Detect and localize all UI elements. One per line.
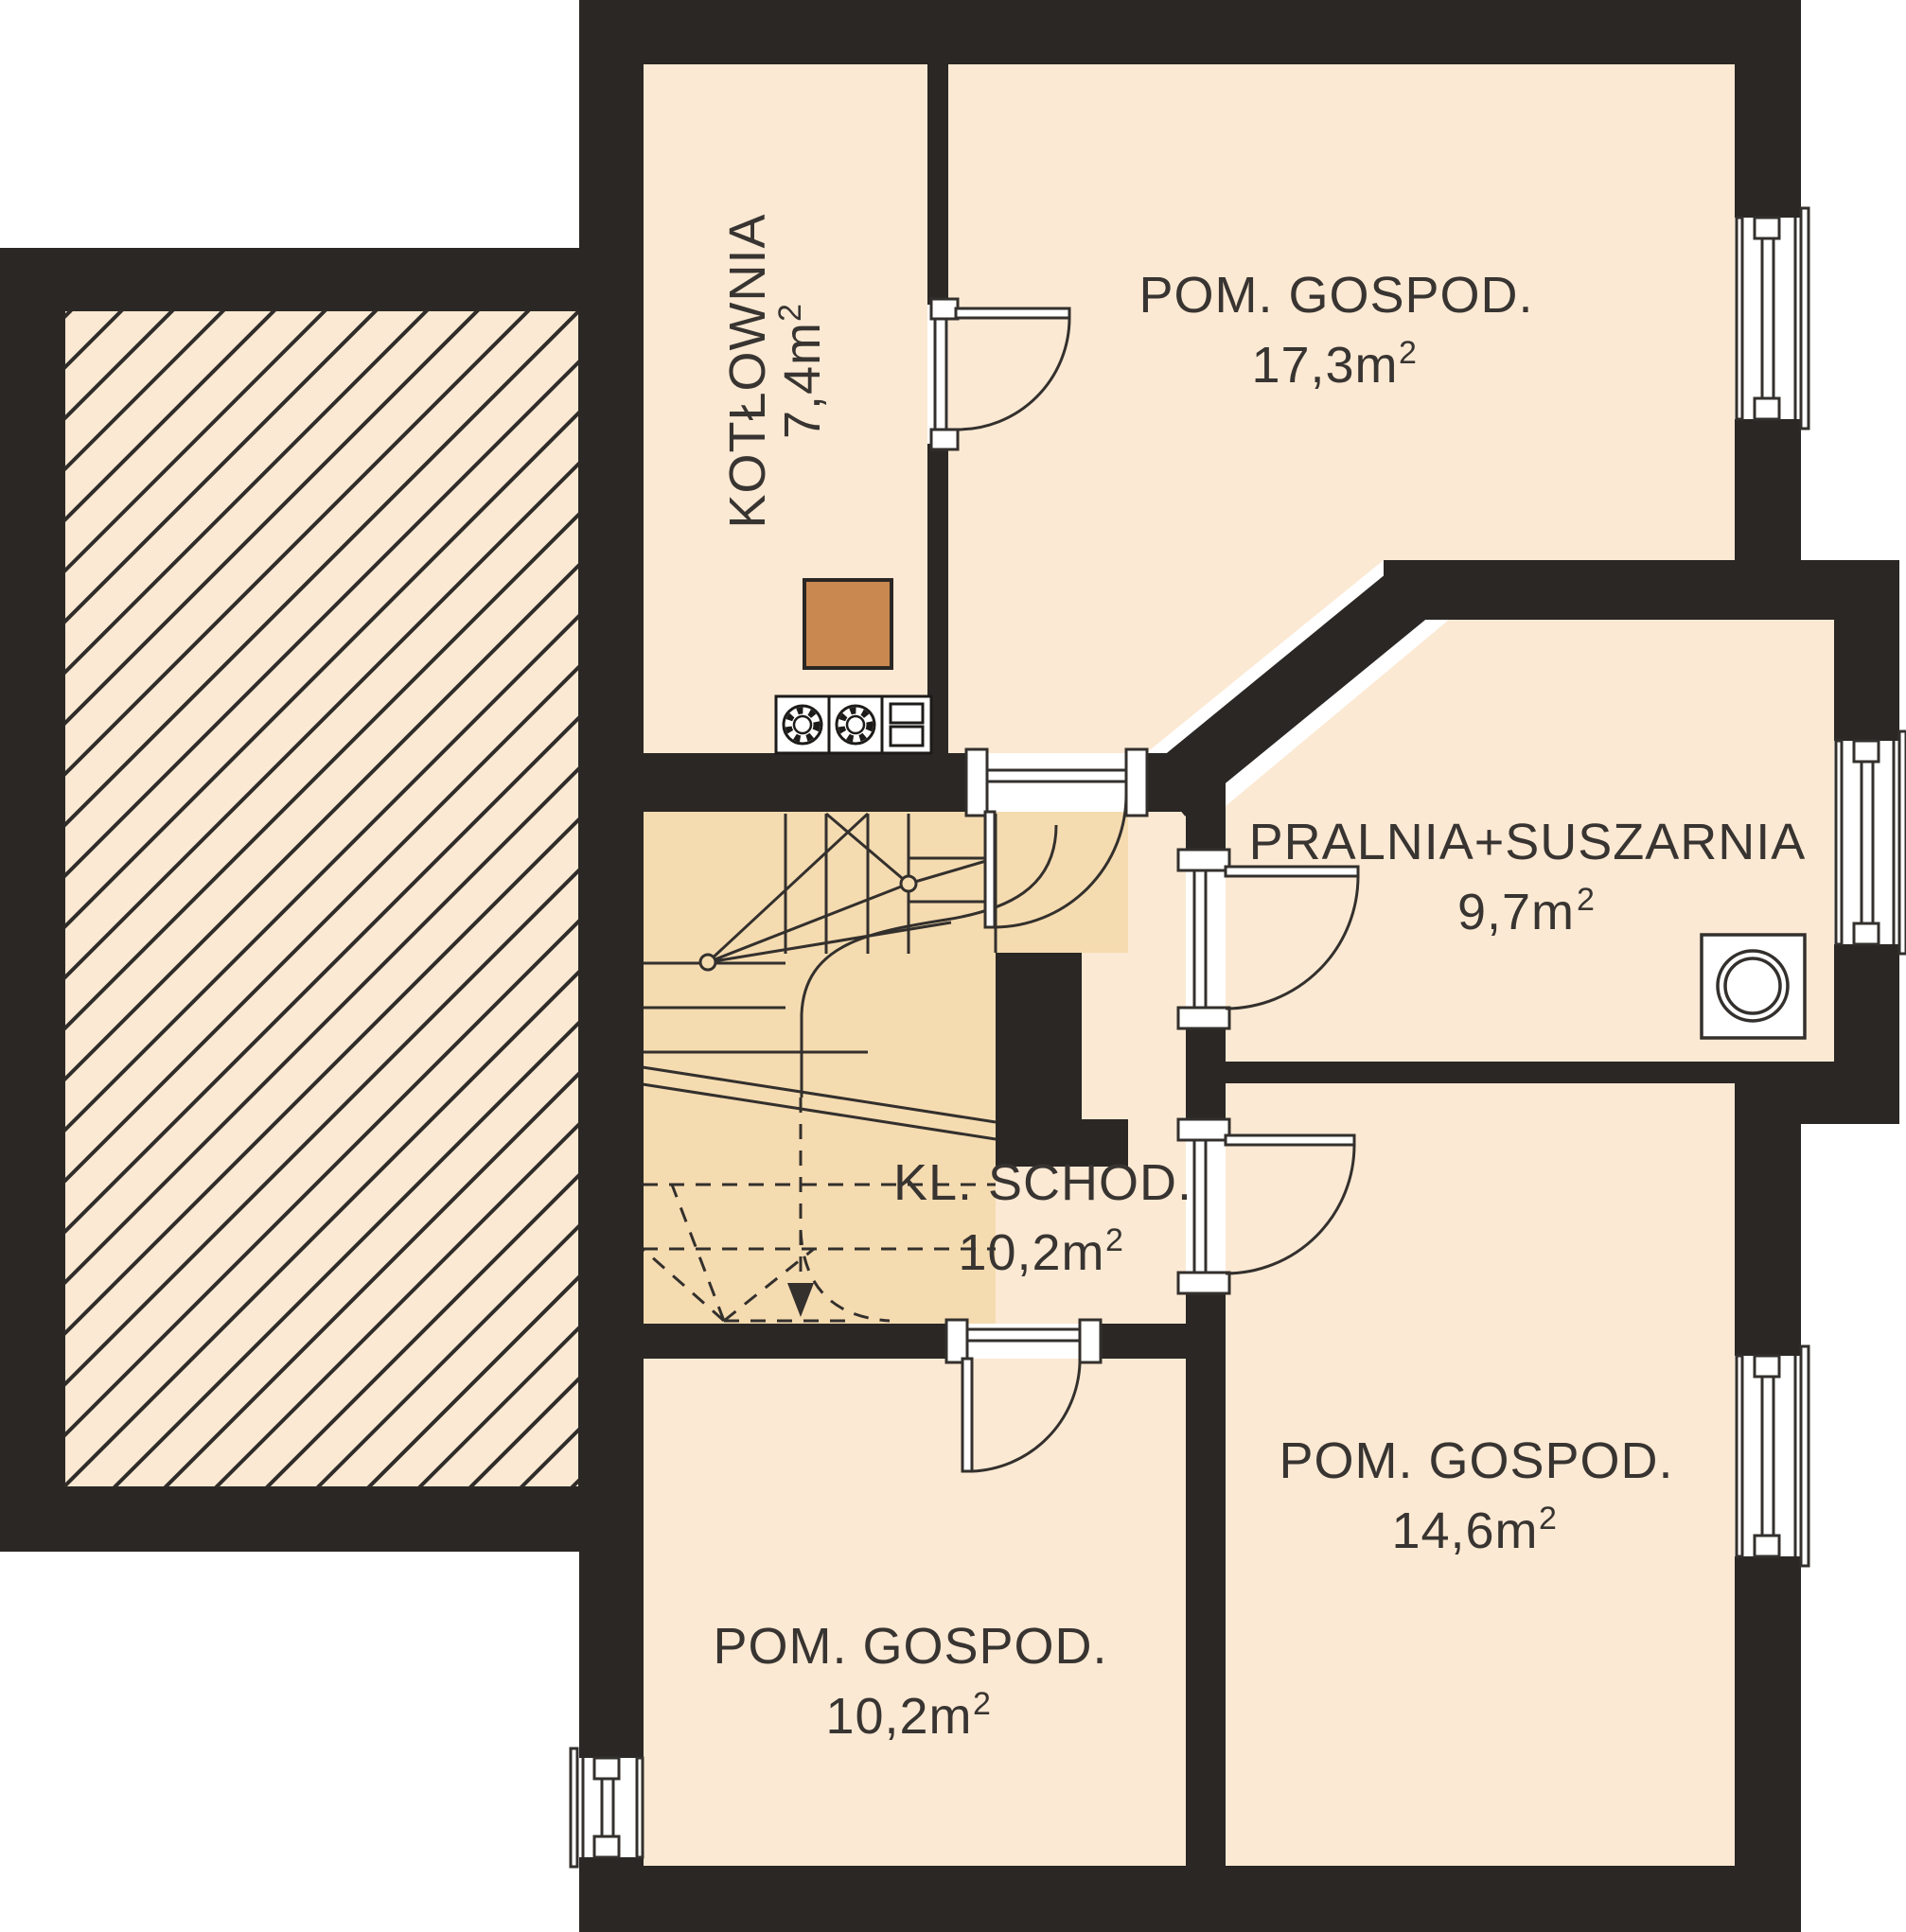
stairs-node bbox=[700, 955, 715, 970]
opening-window-1 bbox=[1735, 218, 1801, 419]
stairs-floor bbox=[643, 812, 996, 1324]
room-name: KOTŁOWNIA bbox=[719, 213, 776, 528]
wall-terrace-left bbox=[0, 248, 64, 1552]
wall-klschod-bottom-left bbox=[579, 1324, 967, 1359]
room-area-sup: 2 bbox=[1399, 335, 1417, 371]
chimney-icon bbox=[804, 580, 891, 668]
wall-exterior-right-146-lower bbox=[1735, 1556, 1801, 1866]
room-area-sup: 2 bbox=[1539, 1501, 1557, 1537]
opening-window-2 bbox=[1834, 741, 1899, 944]
room-area-sup: 2 bbox=[772, 304, 808, 322]
floor-plan-drawing: KOTŁOWNIA 7,4m 2 POM. GOSPOD. 17,3m 2 PR… bbox=[0, 0, 1906, 1932]
wall-terrace-top bbox=[0, 248, 579, 310]
room-area-sup: 2 bbox=[1105, 1222, 1123, 1258]
room-name: POM. GOSPOD. bbox=[1279, 1432, 1673, 1489]
wall-pralnia-right-upper bbox=[1834, 620, 1899, 741]
room-name: KL. SCHOD. bbox=[893, 1154, 1192, 1211]
boiler-flue-icon bbox=[829, 696, 882, 753]
wall-klschod-right-c bbox=[1186, 1273, 1226, 1866]
wall-pralnia-bottom bbox=[1226, 1062, 1735, 1083]
room-name: POM. GOSPOD. bbox=[1138, 267, 1533, 324]
wall-exterior-bottom bbox=[579, 1866, 1801, 1932]
room-area: 10,2m bbox=[825, 1688, 972, 1745]
wall-kotlownia-bottom bbox=[579, 753, 987, 812]
boiler-flues bbox=[776, 696, 931, 753]
room-area-sup: 2 bbox=[1577, 882, 1595, 918]
room-area: 7,4m bbox=[774, 322, 831, 439]
floor-pom-gospod-10 bbox=[644, 1359, 1186, 1866]
washing-machine-icon bbox=[1702, 935, 1805, 1038]
wall-partition-kotlownia-upper bbox=[927, 64, 948, 305]
terrace-hatch bbox=[64, 310, 579, 1487]
wall-exterior-right bbox=[1735, 419, 1801, 560]
room-area: 10,2m bbox=[958, 1224, 1104, 1281]
room-area: 9,7m bbox=[1457, 884, 1575, 940]
wall-terrace-bottom bbox=[0, 1487, 644, 1552]
wall-exterior-right-146-upper bbox=[1735, 1124, 1801, 1356]
wall-exterior-top bbox=[579, 0, 1801, 64]
room-area: 17,3m bbox=[1251, 337, 1398, 394]
floor-plan-page: KOTŁOWNIA 7,4m 2 POM. GOSPOD. 17,3m 2 PR… bbox=[0, 0, 1906, 1932]
opening-window-3 bbox=[1735, 1356, 1801, 1556]
room-area-sup: 2 bbox=[973, 1686, 991, 1722]
boiler-flue-icon bbox=[776, 696, 829, 753]
room-name: PRALNIA+SUSZARNIA bbox=[1249, 814, 1807, 870]
wall-exterior-right-upper bbox=[1735, 64, 1801, 218]
wall-pralnia-bay-bottom bbox=[1735, 1062, 1899, 1124]
stairs-node bbox=[901, 876, 916, 891]
wall-pralnia-top bbox=[1384, 560, 1899, 620]
vent-grille-icon bbox=[882, 696, 931, 753]
room-name: POM. GOSPOD. bbox=[713, 1618, 1107, 1675]
stairs-floor-upper bbox=[996, 812, 1128, 953]
room-area: 14,6m bbox=[1391, 1502, 1538, 1559]
